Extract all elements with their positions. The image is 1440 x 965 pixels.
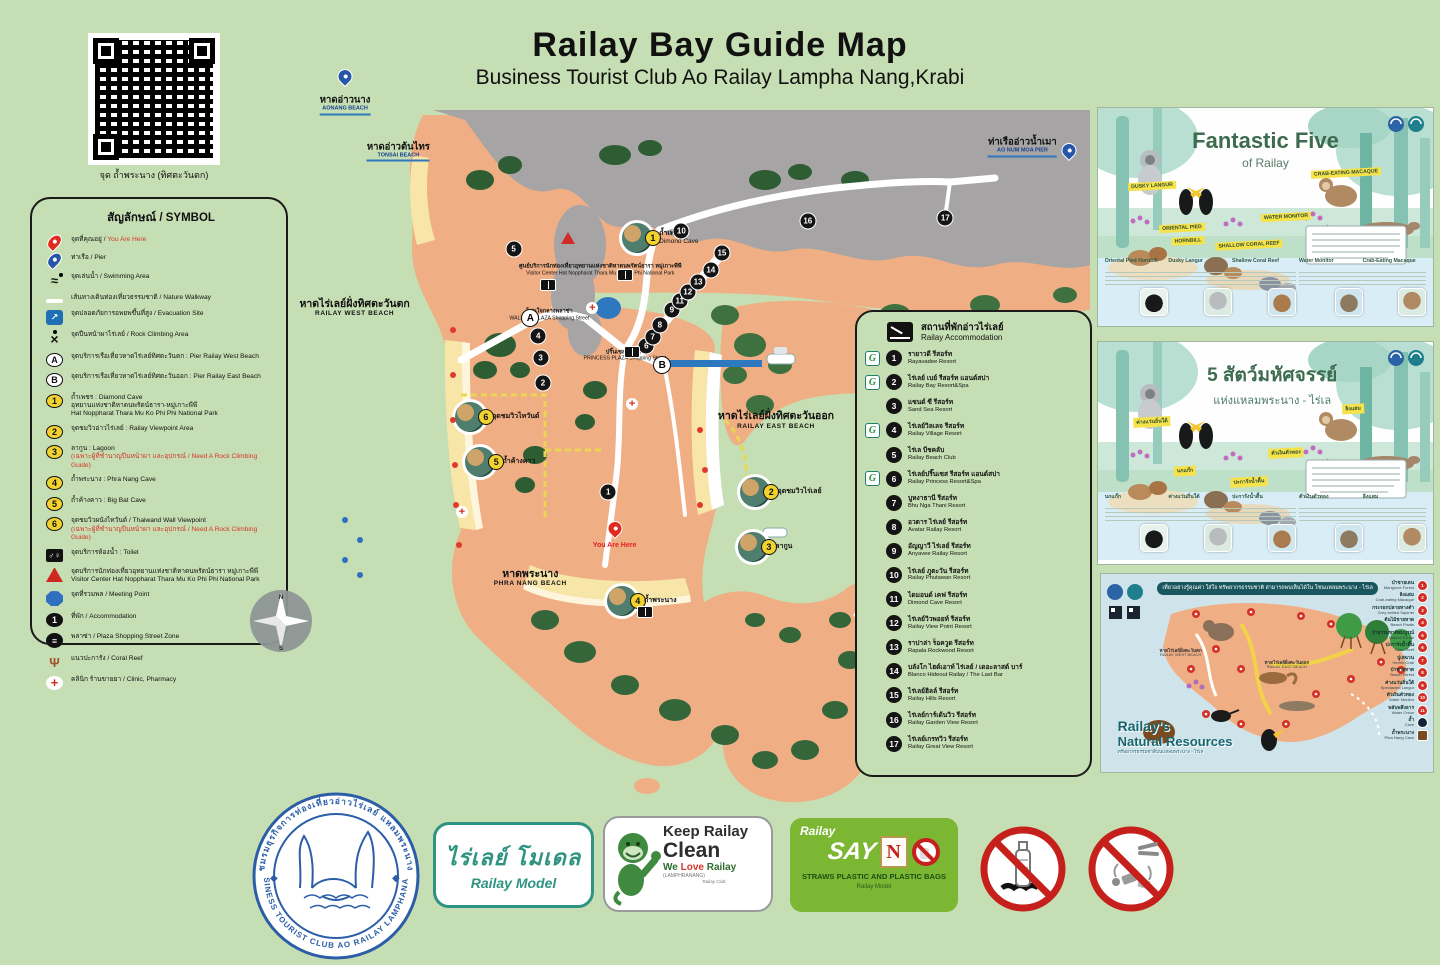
resource-item: ปูเสฉวนHermit Crab 7 bbox=[1358, 655, 1428, 666]
accommodation-number: 17 bbox=[886, 736, 902, 752]
map-marker bbox=[452, 462, 458, 468]
map-marker bbox=[342, 557, 348, 563]
map-marker bbox=[450, 327, 456, 333]
legend-item: A จุดบริการเรือเที่ยวหาดไร่เลย์ทิศตะวันต… bbox=[46, 353, 276, 367]
accommodation-item: 13 ราปาล่า ร็อควูด รีสอร์ท Rapala Rockwo… bbox=[865, 638, 1082, 658]
species-card: ลิงแสม bbox=[1363, 495, 1427, 552]
legend-item: เส้นทางเดินท่องเที่ยวธรรมชาติ / Nature W… bbox=[46, 294, 276, 303]
resources-east-label: หาดไร่เลย์ฝั่งตะวันออกRAILAY EAST BEACH bbox=[1264, 660, 1309, 670]
resource-pin-badge bbox=[1417, 717, 1428, 728]
accommodation-number: 5 bbox=[886, 447, 902, 463]
species-tag: DUSKY LANGUR bbox=[1128, 181, 1176, 191]
map-marker: 4 bbox=[530, 328, 547, 345]
poster-fantastic-five-en: Fantastic Five of Railay DUSKY LANGURORI… bbox=[1097, 107, 1434, 327]
map-label: หาดพระนาง PHRA NANG BEACH bbox=[494, 567, 567, 587]
map-marker: 8 bbox=[651, 316, 668, 333]
map-marker bbox=[637, 606, 653, 618]
legend-item: จุดเล่นน้ำ / Swimming Area bbox=[46, 273, 276, 288]
accommodation-number: 12 bbox=[886, 615, 902, 631]
map-marker bbox=[357, 572, 363, 578]
accommodation-number: 9 bbox=[886, 543, 902, 559]
species-tag: CRAB-EATING MACAQUE bbox=[1311, 168, 1381, 180]
legend-item: คลินิก ร้านขายยา / Clinic, Pharmacy bbox=[46, 676, 276, 690]
species-thumbnail bbox=[1268, 288, 1296, 316]
map-marker: 10 bbox=[673, 223, 690, 240]
resource-pin-badge: 11 bbox=[1417, 705, 1428, 716]
accommodation-item: 16 ไร่เลย์การ์เด้นวิว รีสอร์ท Railay Gar… bbox=[865, 710, 1082, 730]
legend-icon: 6 bbox=[46, 517, 63, 531]
legend-icon bbox=[46, 568, 63, 582]
qr-caption: จุด ถ้ำพระนาง (ทิศตะวันตก) bbox=[58, 168, 250, 182]
legend-item: 5 ถ้ำค้างคาว : Big Bat Cave bbox=[46, 497, 276, 511]
map-label: หาดอ่าวนาง AONANG BEACH bbox=[320, 95, 371, 116]
species-thumbnail bbox=[1204, 524, 1232, 552]
qr-code bbox=[88, 33, 220, 165]
accommodation-number: 8 bbox=[886, 519, 902, 535]
species-card: ตัวเงินตัวทอง bbox=[1299, 495, 1363, 552]
accommodation-item: G 2 ไร่เลย์ เบย์ รีสอร์ท แอนด์สปา Railay… bbox=[865, 372, 1082, 392]
species-tag: SHALLOW CORAL REEF bbox=[1215, 240, 1283, 252]
resources-title: Railay's Natural Resources ทรัพยากรธรรมช… bbox=[1118, 719, 1233, 754]
green-certified-badge: G bbox=[865, 375, 880, 390]
legend-item: 4 ถ้ำพระนาง : Phra Nang Cave bbox=[46, 476, 276, 490]
resource-item: พลับพลึงธารWater Onion 11 bbox=[1358, 705, 1428, 716]
legend-icon bbox=[46, 676, 63, 690]
club-seal-logo: ชมรมธุรกิจการท่องเที่ยวอ่าวไร่เลย์ แหลมพ… bbox=[252, 792, 420, 960]
say-no-plastic-logo: Railay SAY N STRAWS PLASTIC AND PLASTIC … bbox=[790, 818, 958, 912]
species-card: ปะการังน้ำตื้น bbox=[1232, 495, 1296, 552]
resource-item: ป่าธรรมชาติสมบูรณ์Natural Forest 5 bbox=[1358, 630, 1428, 641]
accommodation-number: 6 bbox=[886, 471, 902, 487]
resource-pin-badge: 1 bbox=[1417, 580, 1428, 591]
accommodation-number: 15 bbox=[886, 687, 902, 703]
map-marker bbox=[586, 302, 598, 314]
species-thumbnail bbox=[1398, 288, 1426, 316]
accommodation-list: G 1 รายาวดี รีสอร์ท Rayavadee Resort G 2… bbox=[865, 348, 1082, 753]
green-certified-badge: G bbox=[865, 423, 880, 438]
resources-legend: ป่าชายเลนMangrove Forest 1 ลิงแสมCrab-ea… bbox=[1358, 580, 1428, 741]
accommodation-number: 10 bbox=[886, 567, 902, 583]
photo-callout: 4 ถ้ำพระนาง bbox=[604, 583, 640, 619]
resource-item: ป่าชายเลนMangrove Forest 1 bbox=[1358, 580, 1428, 591]
legend-item: จุดปลอดภัยการอพยพขึ้นที่สูง / Evacuation… bbox=[46, 310, 276, 325]
species-thumbnail bbox=[1140, 524, 1168, 552]
map-marker: 2 bbox=[535, 375, 552, 392]
accommodation-item: 3 แซนด์ ซี รีสอร์ท Sand Sea Resort bbox=[865, 397, 1082, 417]
map-marker: 17 bbox=[937, 210, 954, 227]
legend-icon: B bbox=[46, 373, 63, 387]
accommodation-number: 14 bbox=[886, 663, 902, 679]
legend-icon: 1 bbox=[46, 394, 63, 408]
resource-pin-badge: 6 bbox=[1417, 642, 1428, 653]
map-marker: 15 bbox=[713, 244, 730, 261]
map-label: หาดอ่าวต้นไทร TONSAI BEACH bbox=[367, 141, 430, 162]
photo-callout: 2 จุดชมวิวไร่เลย์ bbox=[737, 474, 773, 510]
resources-west-label: หาดไร่เลย์ฝั่งตะวันตกRAILAY WEST BEACH bbox=[1160, 648, 1202, 658]
poster-species-cards: Oriental Pied Hornbill Dusky Langur Shal… bbox=[1098, 259, 1433, 324]
map-marker bbox=[456, 506, 468, 518]
species-thumbnail bbox=[1398, 524, 1426, 552]
resource-pin-badge: 5 bbox=[1417, 630, 1428, 641]
resource-item: ถ้ำพระนางPhra Nang Cave bbox=[1358, 730, 1428, 741]
legend-item: จุดปีนหน้าผาไร่เลย์ / Rock Climbing Area bbox=[46, 331, 276, 346]
species-tag: WATER MONITOR bbox=[1260, 212, 1311, 223]
species-card: นกแก๊ก bbox=[1105, 495, 1169, 552]
monkey-mascot-icon bbox=[607, 826, 663, 906]
map-marker bbox=[450, 372, 456, 378]
species-card: Oriental Pied Hornbill bbox=[1105, 259, 1169, 316]
species-card: Dusky Langur bbox=[1168, 259, 1232, 316]
map-label: หาดไร่เลย์ฝั่งทิศตะวันตก RAILAY WEST BEA… bbox=[299, 297, 409, 317]
legend-icon bbox=[46, 591, 63, 606]
legend-item: จุดบริการนักท่องเที่ยวอุทยานแห่งชาติหาดน… bbox=[46, 568, 276, 584]
accommodation-number: 7 bbox=[886, 495, 902, 511]
resource-pin-badge: 8 bbox=[1417, 667, 1428, 678]
map-marker bbox=[626, 398, 638, 410]
legend-title: สัญลักษณ์ / SYMBOL bbox=[46, 209, 276, 227]
poster-natural-resources: เที่ยวอย่างรู้คุณค่า ใส่ใจ ทรัพยากรธรรมช… bbox=[1100, 573, 1434, 773]
accommodation-title-en: Railay Accommodation bbox=[921, 333, 1004, 342]
photo-callout: 3 ลากูน bbox=[735, 529, 771, 565]
species-tag: HORNBILL bbox=[1172, 236, 1205, 246]
no-plastic-bag-icon bbox=[912, 838, 940, 866]
map-marker: A bbox=[521, 309, 539, 327]
resource-pin-badge: 7 bbox=[1417, 655, 1428, 666]
card-text-lines bbox=[1232, 272, 1296, 286]
svg-text:◆: ◆ bbox=[392, 873, 400, 884]
species-tag: ORIENTAL PIED bbox=[1159, 223, 1205, 233]
card-text-lines bbox=[1168, 272, 1232, 286]
resource-item: ป่าชายหาดBeach Forest 8 bbox=[1358, 667, 1428, 678]
accommodation-number: 4 bbox=[886, 422, 902, 438]
accommodation-item: 5 ไร่เล บีชคลับ Railay Beach Club bbox=[865, 445, 1082, 465]
species-card: Crab-Eating Macaque bbox=[1363, 259, 1427, 316]
legend-item: ท่าเรือ / Pier bbox=[46, 254, 276, 266]
no-plastic-bottle-sign bbox=[980, 826, 1066, 912]
map-marker: 3 bbox=[532, 349, 549, 366]
svg-text:S: S bbox=[279, 646, 283, 652]
map-label: หาดไร่เลย์ฝั่งทิศตะวันออก RAILAY EAST BE… bbox=[718, 410, 834, 430]
map-marker: 5 bbox=[505, 241, 522, 258]
card-text-lines bbox=[1232, 508, 1296, 522]
legend-item: จุดที่รวมพล / Meeting Point bbox=[46, 591, 276, 606]
legend-icon bbox=[46, 549, 63, 562]
map-label: ท่าเรืออ่าวน้ำเมา AO NUM MOA PIER bbox=[988, 137, 1057, 158]
accommodation-number: 2 bbox=[886, 374, 902, 390]
railay-guide-map-page: Railay Bay Guide Map Business Tourist Cl… bbox=[0, 0, 1440, 952]
legend-icon: A bbox=[46, 353, 63, 367]
legend-icon bbox=[46, 299, 63, 303]
legend-item: 3 ลากูน : Lagoon (เฉพาะผู้ที่ชำนาญปีนหน้… bbox=[46, 445, 276, 470]
legend-icon: 5 bbox=[46, 497, 63, 511]
species-thumbnail bbox=[1335, 288, 1363, 316]
poster-species-cards: นกแก๊ก ค่างแว่นถิ่นใต้ ปะการังน้ำตื้น bbox=[1098, 495, 1433, 562]
legend-item: B จุดบริการเรือเที่ยวหาดไร่เลย์ทิศตะวันอ… bbox=[46, 373, 276, 387]
resource-item: กระรอกปลายหางดำGrey-bellied Squirrel 3 bbox=[1358, 605, 1428, 616]
accommodation-item: 12 ไร่เลย์วิวพอยท์ รีสอร์ท Railay View P… bbox=[865, 613, 1082, 633]
card-text-lines bbox=[1105, 272, 1169, 286]
accommodation-number: 1 bbox=[886, 350, 902, 366]
species-thumbnail bbox=[1140, 288, 1168, 316]
map-marker: B bbox=[653, 356, 671, 374]
map-label: ศูนย์บริการนักท่องเที่ยวอุทยานแห่งชาติหา… bbox=[519, 264, 682, 277]
map-marker bbox=[450, 417, 456, 423]
legend-item: 6 จุดชมวิวผนังไทวันด์ / Thaiwand Wall Vi… bbox=[46, 517, 276, 542]
legend-item: แนวปะการัง / Coral Reef bbox=[46, 655, 276, 670]
accommodation-panel: สถานที่พักอ่าวไร่เลย์ Railay Accommodati… bbox=[855, 310, 1092, 777]
accommodation-item: 11 ไดมอนด์ เคฟ รีสอร์ท Dimond Cave Resor… bbox=[865, 589, 1082, 609]
species-thumbnail bbox=[1204, 288, 1232, 316]
resource-item: ค่างแว่นถิ่นใต้Spectacled Langur 9 bbox=[1358, 680, 1428, 691]
resource-item: ถ้ำCave bbox=[1358, 717, 1428, 728]
species-tag: ปะการังน้ำตื้น bbox=[1230, 476, 1267, 488]
legend-item: จุดที่คุณอยู่ / You Are Here bbox=[46, 236, 276, 248]
legend-icon bbox=[46, 655, 63, 670]
legend-item: 2 จุดชมวิวอ่าวไร่เลย์ : Railay Viewpoint… bbox=[46, 425, 276, 439]
railay-model-logo: ไร่เลย์ โมเดล Railay Model bbox=[433, 822, 594, 908]
species-tag: ลิงแสม bbox=[1342, 403, 1364, 414]
legend-icon bbox=[46, 310, 63, 325]
species-tag: นกแก๊ก bbox=[1174, 465, 1197, 476]
card-text-lines bbox=[1168, 508, 1232, 522]
accommodation-item: 17 ไร่เลย์เกรทวิว รีสอร์ท Railay Great V… bbox=[865, 734, 1082, 754]
accommodation-number: 13 bbox=[886, 639, 902, 655]
accommodation-title-th: สถานที่พักอ่าวไร่เลย์ bbox=[921, 322, 1004, 333]
legend-icon: 3 bbox=[46, 445, 63, 459]
resource-pin-badge bbox=[1417, 730, 1428, 741]
species-thumbnail bbox=[1335, 524, 1363, 552]
photo-callout: 1 ถ้ำเพชร Dimond Cave bbox=[619, 220, 655, 256]
resource-pin-badge: 3 bbox=[1417, 605, 1428, 616]
species-card: Shallow Coral Reef bbox=[1232, 259, 1296, 316]
card-text-lines bbox=[1363, 508, 1427, 522]
map-marker: 14 bbox=[702, 262, 719, 279]
map-marker bbox=[702, 467, 708, 473]
card-text-lines bbox=[1299, 508, 1363, 522]
card-text-lines bbox=[1105, 508, 1169, 522]
photo-callout: 6 จุดชมวิวไทวันด์ bbox=[452, 399, 488, 435]
accommodation-item: 9 อัญญาวี ไร่เลย์ รีสอร์ท Anyavee Railay… bbox=[865, 541, 1082, 561]
resource-pin-badge: 9 bbox=[1417, 680, 1428, 691]
map-marker bbox=[540, 279, 556, 291]
legend-item: จุดบริการห้องน้ำ : Toilet bbox=[46, 549, 276, 562]
resource-pin-badge: 4 bbox=[1417, 617, 1428, 628]
legend-icon: 1 bbox=[46, 613, 63, 627]
resource-pin-badge: 2 bbox=[1417, 592, 1428, 603]
legend-icon bbox=[44, 250, 65, 271]
map-marker bbox=[342, 517, 348, 523]
accommodation-number: 11 bbox=[886, 591, 902, 607]
green-certified-badge: G bbox=[865, 471, 880, 486]
symbol-legend: สัญลักษณ์ / SYMBOL จุดที่คุณอยู่ / You A… bbox=[30, 197, 288, 645]
map-marker bbox=[357, 537, 363, 543]
no-littering-sign bbox=[1088, 826, 1174, 912]
accommodation-item: 7 บูหงาธานี รีสอร์ท Bhu Nga Thani Resort bbox=[865, 493, 1082, 513]
resource-item: ปะการังน้ำตื้นCoral Reef 6 bbox=[1358, 642, 1428, 653]
qr-pattern bbox=[95, 40, 213, 158]
map-marker: 1 bbox=[600, 484, 617, 501]
map-marker: 16 bbox=[799, 213, 816, 230]
card-text-lines bbox=[1363, 272, 1427, 286]
bed-icon bbox=[887, 322, 913, 342]
legend-item: 1 ที่พัก / Accommodation bbox=[46, 613, 276, 627]
species-card: Water Monitor bbox=[1299, 259, 1363, 316]
accommodation-number: 3 bbox=[886, 398, 902, 414]
accommodation-item: 15 ไร่เลย์ฮิลล์ รีสอร์ท Railay Hills Res… bbox=[865, 686, 1082, 706]
map-label: You Are Here bbox=[593, 542, 637, 550]
resource-item: ลิงแสมCrab-eating Macaque 2 bbox=[1358, 592, 1428, 603]
accommodation-item: G 1 รายาวดี รีสอร์ท Rayavadee Resort bbox=[865, 348, 1082, 368]
species-tag: ค่างแว่นถิ่นใต้ bbox=[1133, 416, 1171, 428]
accommodation-item: G 4 ไร่เลย์วิลเลจ รีสอร์ท Railay Village… bbox=[865, 421, 1082, 441]
keep-railay-clean-logo: Keep Railay Clean We Love Railay (LAMPHR… bbox=[603, 816, 773, 912]
svg-text:◆: ◆ bbox=[270, 873, 278, 884]
svg-text:N: N bbox=[279, 595, 283, 601]
green-certified-badge: G bbox=[865, 351, 880, 366]
species-card: ค่างแว่นถิ่นใต้ bbox=[1168, 495, 1232, 552]
map-marker bbox=[617, 269, 633, 281]
accommodation-number: 16 bbox=[886, 712, 902, 728]
poster-fantastic-five-th: 5 สัตว์มหัศจรรย์ แห่งแหลมพระนาง - ไร่เล … bbox=[1097, 341, 1434, 565]
species-tag: ตัวเงินตัวทอง bbox=[1268, 447, 1304, 459]
species-thumbnail bbox=[1268, 524, 1296, 552]
accommodation-item: G 6 ไร่เลย์ปริ๊นเซส รีสอร์ท แอนด์สปา Rai… bbox=[865, 469, 1082, 489]
resources-banner: เที่ยวอย่างรู้คุณค่า ใส่ใจ ทรัพยากรธรรมช… bbox=[1157, 582, 1377, 595]
legend-icon bbox=[46, 273, 63, 288]
map-marker bbox=[697, 427, 703, 433]
accommodation-item: 10 ไร่เลย์ ภูตะวัน รีสอร์ท Railay Phutaw… bbox=[865, 565, 1082, 585]
resource-pin-badge: 10 bbox=[1417, 692, 1428, 703]
map-marker bbox=[453, 502, 459, 508]
accommodation-item: 14 บลังโก ไฮด์เอาท์ ไร่เลย์ / เดอะลาสต์ … bbox=[865, 662, 1082, 682]
legend-item: 1 ถ้ำเพชร : Diamond Cave อุทยานแห่งชาติห… bbox=[46, 394, 276, 419]
legend-icon: 2 bbox=[46, 425, 63, 439]
legend-icon bbox=[46, 331, 63, 346]
map-marker bbox=[624, 346, 640, 358]
photo-callout: 5 ถ้ำค้างคาว bbox=[462, 444, 498, 480]
resource-item: ต้นไม้ชายหาดBeach Plants 4 bbox=[1358, 617, 1428, 628]
legend-icon bbox=[44, 231, 65, 252]
legend-icon: 4 bbox=[46, 476, 63, 490]
map-marker bbox=[697, 502, 703, 508]
accommodation-item: 8 อวตาร ไร่เลย์ รีสอร์ท Avatar Railay Re… bbox=[865, 517, 1082, 537]
map-marker bbox=[561, 232, 575, 244]
card-text-lines bbox=[1299, 272, 1363, 286]
legend-icon bbox=[46, 633, 63, 648]
resource-item: ตัวเงินตัวทองWater Monitor 10 bbox=[1358, 692, 1428, 703]
map-marker bbox=[456, 542, 462, 548]
legend-item: พลาซ่า / Plaza Shopping Street Zone bbox=[46, 633, 276, 648]
